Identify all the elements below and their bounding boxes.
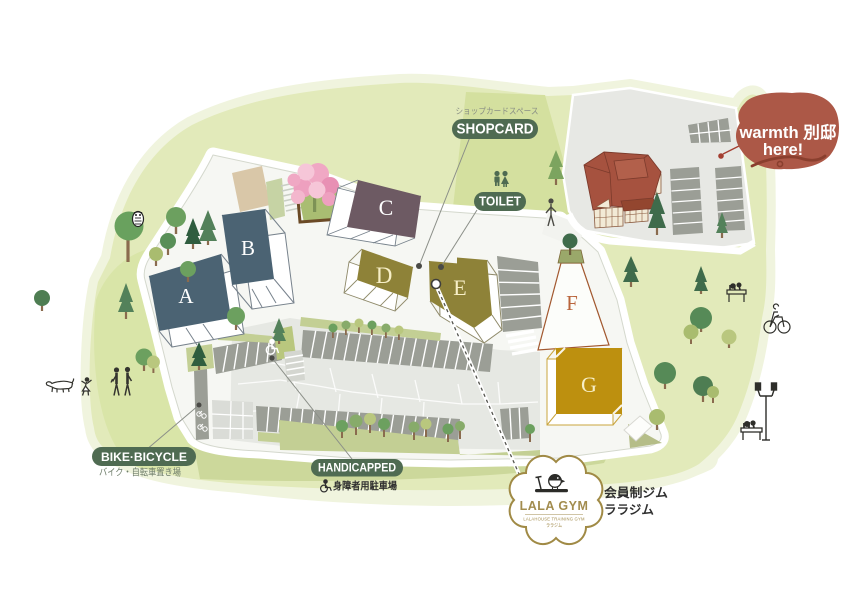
svg-text:BIKE·BICYCLE: BIKE·BICYCLE xyxy=(101,450,187,464)
svg-text:会員制ジム: 会員制ジム xyxy=(604,485,668,500)
svg-text:身障者用駐車場: 身障者用駐車場 xyxy=(333,480,397,493)
svg-text:ショップカードスペース: ショップカードスペース xyxy=(456,106,539,116)
svg-text:TOILET: TOILET xyxy=(479,195,521,209)
svg-text:C: C xyxy=(379,195,394,220)
svg-text:ララジム: ララジム xyxy=(546,523,562,529)
svg-text:E: E xyxy=(453,275,466,300)
svg-text:SHOPCARD: SHOPCARD xyxy=(457,121,534,138)
svg-text:ララジム: ララジム xyxy=(604,503,654,517)
svg-text:F: F xyxy=(566,291,578,315)
svg-text:LALA GYM: LALA GYM xyxy=(520,499,589,513)
svg-text:A: A xyxy=(178,284,194,308)
svg-text:B: B xyxy=(241,236,255,260)
svg-text:D: D xyxy=(376,263,393,288)
svg-text:LALAHOUSE TRAINING GYM: LALAHOUSE TRAINING GYM xyxy=(523,517,585,522)
svg-text:G: G xyxy=(581,372,597,397)
svg-text:HANDICAPPED: HANDICAPPED xyxy=(318,463,396,475)
svg-text:バイク・自転車置き場: バイク・自転車置き場 xyxy=(99,467,181,479)
svg-text:warmth 別邸: warmth 別邸 xyxy=(738,123,837,142)
